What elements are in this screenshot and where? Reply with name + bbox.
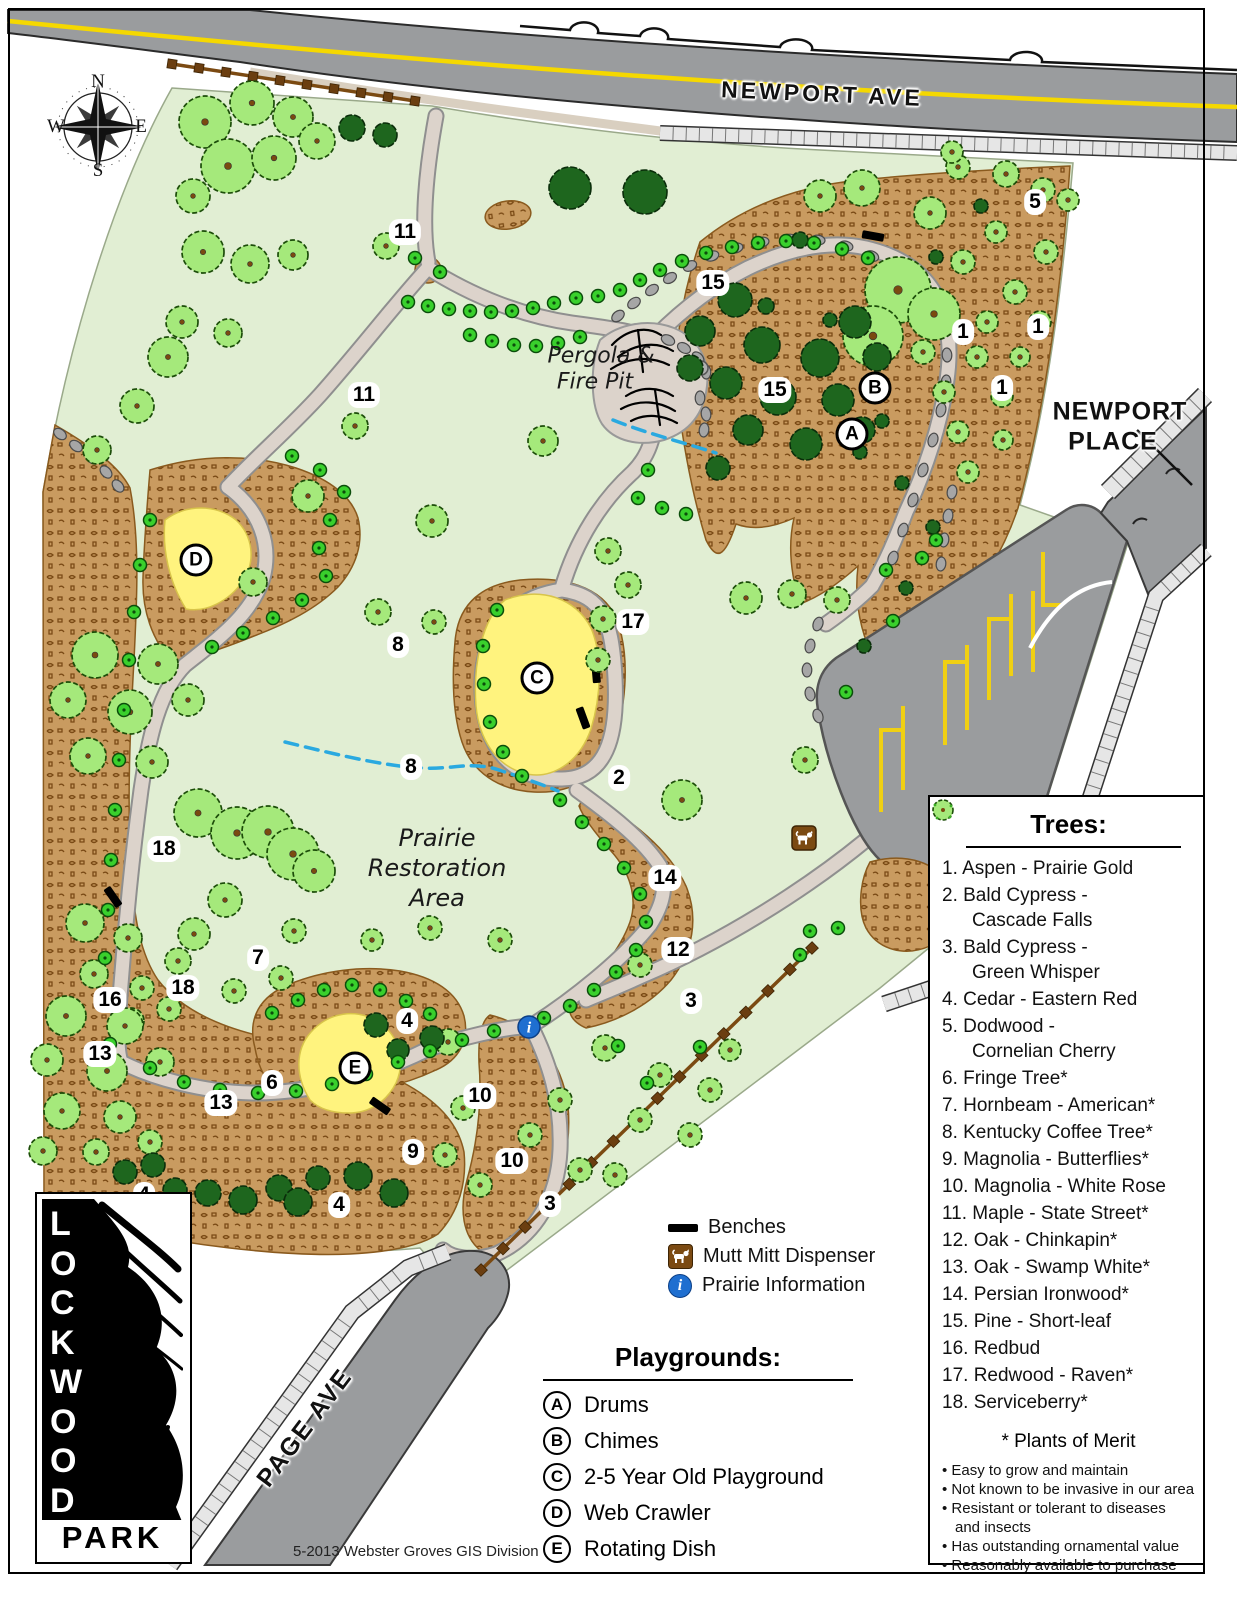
prairie-info-label: Prairie Information [702, 1274, 865, 1297]
tree-legend-item-15[interactable]: 15. Pine - Short-leaf [942, 1309, 1195, 1334]
tree-legend-item-4[interactable]: 4. Cedar - Eastern Red [942, 987, 1195, 1012]
evergreen-tree-icon [339, 115, 365, 141]
deciduous-tree-icon [911, 340, 935, 364]
mutt-mitt-label: Mutt Mitt Dispenser [703, 1245, 875, 1268]
playground-marker-C[interactable]: C [521, 662, 554, 695]
deciduous-tree-icon [114, 924, 142, 952]
deciduous-tree-icon [468, 1173, 492, 1197]
deciduous-tree-icon [120, 389, 154, 423]
evergreen-tree-icon [364, 1013, 388, 1037]
deciduous-tree-icon [719, 1039, 741, 1061]
shrub-icon [422, 300, 435, 313]
evergreen-tree-icon [195, 1180, 221, 1206]
shrub-icon [887, 615, 900, 628]
shrub-icon [484, 716, 497, 729]
tree-legend-item-2[interactable]: 2. Bald Cypress -Cascade Falls [942, 883, 1195, 933]
deciduous-tree-icon [178, 918, 210, 950]
deciduous-tree-icon [172, 684, 204, 716]
evergreen-tree-icon [373, 123, 397, 147]
shrub-icon [630, 944, 643, 957]
playground-label: Web Crawler [584, 1500, 711, 1526]
tree-legend-text: 15. Pine - Short-leaf [942, 1311, 1111, 1332]
tree-legend-text: 8. Kentucky Coffee Tree* [942, 1122, 1153, 1143]
merit-bullet: and insects [942, 1518, 1195, 1537]
deciduous-tree-icon [269, 966, 293, 990]
deciduous-tree-icon [1057, 189, 1079, 211]
fence-post [329, 84, 339, 94]
deciduous-tree-icon [166, 306, 198, 338]
shrub-icon [880, 564, 893, 577]
deciduous-tree-icon [66, 904, 104, 942]
shrub-icon [656, 502, 669, 515]
evergreen-tree-icon [822, 384, 854, 416]
mutt-mitt-icon [668, 1244, 693, 1269]
shrub-icon [930, 534, 943, 547]
evergreen-tree-icon [744, 327, 780, 363]
shrub-icon [488, 1025, 501, 1038]
tree-number-marker-5[interactable]: 5 [1024, 189, 1046, 215]
tree-legend-text: 2. Bald Cypress - [942, 885, 1088, 906]
deciduous-tree-icon [548, 1088, 572, 1112]
shrub-icon [409, 252, 422, 265]
tree-number-marker-18[interactable]: 18 [147, 836, 180, 862]
tree-icon [930, 797, 956, 823]
tree-legend-item-1[interactable]: 1. Aspen - Prairie Gold [942, 856, 1195, 881]
deciduous-tree-icon [844, 170, 880, 206]
tree-legend-text: 3. Bald Cypress - [942, 937, 1088, 958]
fence-post [194, 63, 204, 73]
shrub-icon [109, 804, 122, 817]
shrub-icon [266, 1007, 279, 1020]
shrub-icon [632, 492, 645, 505]
tree-number-marker-3[interactable]: 3 [680, 988, 702, 1014]
evergreen-tree-icon [306, 1166, 330, 1190]
tree-number-marker-13[interactable]: 13 [204, 1090, 237, 1116]
shrub-icon [618, 862, 631, 875]
tree-legend-item-14[interactable]: 14. Persian Ironwood* [942, 1282, 1195, 1307]
tree-number-marker-15[interactable]: 15 [696, 270, 729, 296]
playgrounds-underline [543, 1379, 853, 1381]
shrub-icon [516, 770, 529, 783]
playground-marker-E[interactable]: E [339, 1052, 372, 1085]
tree-legend-item-16[interactable]: 16. Redbud [942, 1336, 1195, 1361]
shrub-icon [296, 594, 309, 607]
tree-number-marker-16[interactable]: 16 [93, 987, 126, 1013]
evergreen-tree-icon [344, 1162, 372, 1190]
shrub-icon [506, 305, 519, 318]
shrub-icon [794, 949, 807, 962]
deciduous-tree-icon [361, 929, 383, 951]
shrub-icon [497, 746, 510, 759]
tree-number-marker-1[interactable]: 1 [952, 319, 974, 345]
deciduous-tree-icon [698, 1078, 722, 1102]
prairie-label-line3: Area [409, 884, 465, 912]
playground-label: Drums [584, 1392, 649, 1418]
deciduous-tree-icon [615, 572, 641, 598]
deciduous-tree-icon [83, 436, 111, 464]
deciduous-tree-icon [208, 883, 242, 917]
tree-number-marker-14[interactable]: 14 [648, 865, 681, 891]
shrub-icon [113, 754, 126, 767]
prairie-info-icon: i [668, 1274, 692, 1298]
deciduous-tree-icon [130, 976, 154, 1000]
deciduous-tree-icon [182, 231, 224, 273]
evergreen-tree-icon [685, 316, 715, 346]
deciduous-tree-icon [488, 928, 512, 952]
deciduous-tree-icon [365, 599, 391, 625]
deciduous-tree-icon [678, 1123, 702, 1147]
deciduous-tree-icon [933, 381, 955, 403]
tree-legend-item-9[interactable]: 9. Magnolia - Butterflies* [942, 1147, 1195, 1172]
legend-row-info: i Prairie Information [668, 1271, 875, 1300]
tree-legend-text: 6. Fringe Tree* [942, 1068, 1068, 1089]
deciduous-tree-icon [947, 421, 969, 443]
shrub-icon [424, 1008, 437, 1021]
shrub-icon [574, 331, 587, 344]
shrub-icon [346, 979, 359, 992]
deciduous-tree-icon [176, 179, 210, 213]
deciduous-tree-icon [804, 180, 836, 212]
deciduous-tree-icon [165, 948, 191, 974]
pergola-label-line1: Pergola & [547, 344, 654, 369]
trees-legend-underline [966, 846, 1181, 848]
prairie-label-line1: Prairie [398, 824, 475, 852]
deciduous-tree-icon [628, 953, 652, 977]
shrub-icon [478, 678, 491, 691]
playground-letter-badge: E [543, 1535, 571, 1563]
evergreen-tree-icon [733, 415, 763, 445]
shrub-icon [134, 559, 147, 572]
shrub-icon [862, 252, 875, 265]
tree-legend-text: 14. Persian Ironwood* [942, 1284, 1129, 1305]
compass-east-label: E [135, 116, 147, 138]
evergreen-tree-icon [758, 298, 774, 314]
deciduous-tree-icon [299, 123, 335, 159]
deciduous-tree-icon [993, 430, 1013, 450]
park-text: PARK [42, 1520, 183, 1556]
stone [695, 391, 705, 405]
tree-number-marker-15[interactable]: 15 [758, 377, 791, 403]
tree-legend-text: 5. Dodwood - [942, 1016, 1055, 1037]
shrub-icon [610, 966, 623, 979]
compass-north-label: N [91, 71, 105, 93]
playground-label: 2-5 Year Old Playground [584, 1464, 824, 1490]
fence-post [221, 67, 231, 77]
deciduous-tree-icon [418, 916, 442, 940]
webster-groves-logo: Webster Groves [95, 1359, 175, 1391]
merit-bullet: Reasonably available to purchase [942, 1556, 1195, 1575]
shrub-icon [314, 464, 327, 477]
deciduous-tree-icon [985, 221, 1007, 243]
shrub-icon [464, 329, 477, 342]
trees-legend-title: Trees: [1030, 809, 1107, 840]
deciduous-tree-icon [628, 1108, 652, 1132]
playground-letter-badge: C [543, 1463, 571, 1491]
deciduous-tree-icon [46, 996, 86, 1036]
evergreen-tree-icon [863, 343, 891, 371]
evergreen-tree-icon [623, 170, 667, 214]
deciduous-tree-icon [595, 538, 621, 564]
shrub-icon [680, 508, 693, 521]
evergreen-tree-icon [929, 250, 943, 264]
tree-legend-item-3[interactable]: 3. Bald Cypress -Green Whisper [942, 935, 1195, 985]
evergreen-tree-icon [284, 1188, 312, 1216]
shrub-icon [634, 888, 647, 901]
stone [802, 663, 812, 677]
evergreen-tree-icon [677, 355, 703, 381]
tree-legend-item-13[interactable]: 13. Oak - Swamp White* [942, 1255, 1195, 1280]
deciduous-tree-icon [292, 480, 324, 512]
playground-legend-item-A[interactable]: ADrums [543, 1391, 873, 1419]
playgrounds-title: Playgrounds: [543, 1342, 853, 1373]
evergreen-tree-icon [801, 339, 839, 377]
playground-legend-item-D[interactable]: DWeb Crawler [543, 1499, 873, 1527]
groves-text: Groves [95, 1375, 175, 1391]
fence-post [248, 71, 258, 81]
shrub-icon [144, 514, 157, 527]
playground-label: Chimes [584, 1428, 659, 1454]
deciduous-tree-icon [1003, 280, 1027, 304]
shrub-icon [434, 266, 447, 279]
tree-number-marker-4[interactable]: 4 [328, 1192, 350, 1218]
shrub-icon [592, 290, 605, 303]
shrub-icon [486, 335, 499, 348]
merit-bullet: Has outstanding ornamental value [942, 1537, 1195, 1556]
credit-line: 5-2013 Webster Groves GIS Division [293, 1543, 539, 1560]
deciduous-tree-icon [416, 505, 448, 537]
lockwood-vertical-text: LOCKWOOD [50, 1205, 82, 1521]
playground-marker-B[interactable]: B [859, 372, 892, 405]
tree-legend-text: Cascade Falls [942, 908, 1195, 933]
tree-legend-item-6[interactable]: 6. Fringe Tree* [942, 1066, 1195, 1091]
bench-icon [668, 1224, 698, 1232]
tree-legend-item-17[interactable]: 17. Redwood - Raven* [942, 1363, 1195, 1388]
compass-south-label: S [93, 160, 104, 182]
evergreen-tree-icon [792, 232, 808, 248]
evergreen-tree-icon [380, 1179, 408, 1207]
deciduous-tree-icon [136, 746, 168, 778]
shrub-icon [320, 570, 333, 583]
deciduous-tree-icon [792, 747, 818, 773]
shrub-icon [598, 838, 611, 851]
mutt-mitt-dispenser-marker[interactable] [792, 826, 816, 850]
tree-legend-item-5[interactable]: 5. Dodwood -Cornelian Cherry [942, 1014, 1195, 1064]
evergreen-tree-icon [141, 1153, 165, 1177]
prairie-information-marker[interactable]: i [518, 1016, 540, 1038]
tree-number-marker-12[interactable]: 12 [661, 937, 694, 963]
shrub-icon [752, 237, 765, 250]
playground-legend-item-C[interactable]: C2-5 Year Old Playground [543, 1463, 873, 1491]
deciduous-tree-icon [1010, 347, 1030, 367]
tree-legend-item-12[interactable]: 12. Oak - Chinkapin* [942, 1228, 1195, 1253]
deciduous-tree-icon [603, 1163, 627, 1187]
deciduous-tree-icon [72, 632, 118, 678]
shrub-icon [326, 1078, 339, 1091]
deciduous-tree-icon [914, 197, 946, 229]
fence-post [410, 96, 420, 106]
deciduous-tree-icon [966, 346, 988, 368]
shrub-icon [477, 640, 490, 653]
tree-number-marker-8[interactable]: 8 [400, 754, 422, 780]
deciduous-tree-icon [518, 1123, 542, 1147]
playground-legend-item-E[interactable]: ERotating Dish [543, 1535, 873, 1563]
tree-number-marker-10[interactable]: 10 [463, 1083, 496, 1109]
trees-legend-title-row: Trees: [942, 809, 1195, 840]
playground-marker-A[interactable]: A [836, 418, 869, 451]
tree-legend-item-11[interactable]: 11. Maple - State Street* [942, 1201, 1195, 1226]
evergreen-tree-icon [857, 639, 871, 653]
deciduous-tree-icon [778, 580, 806, 608]
evergreen-tree-icon [229, 1186, 257, 1214]
deciduous-tree-icon [44, 1093, 80, 1129]
tree-legend-text: 13. Oak - Swamp White* [942, 1257, 1150, 1278]
shrub-icon [832, 922, 845, 935]
playground-legend-item-B[interactable]: BChimes [543, 1427, 873, 1455]
symbols-legend: Benches Mutt Mitt Dispenser i Prairie In… [668, 1213, 875, 1300]
tree-number-marker-10[interactable]: 10 [495, 1148, 528, 1174]
shrub-icon [554, 794, 567, 807]
shrub-icon [576, 816, 589, 829]
shrub-icon [118, 704, 131, 717]
shrub-icon [292, 994, 305, 1007]
merit-bullet: Not known to be invasive in our area [942, 1480, 1195, 1499]
evergreen-tree-icon [974, 199, 988, 213]
tree-legend-text: 12. Oak - Chinkapin* [942, 1230, 1117, 1251]
tree-legend-item-10[interactable]: 10. Magnolia - White Rose [942, 1174, 1195, 1199]
shrub-icon [237, 627, 250, 640]
tree-legend-item-18[interactable]: 18. Serviceberry* [942, 1390, 1195, 1415]
deciduous-tree-icon [957, 461, 979, 483]
newport-place-label-2: PLACE [1068, 428, 1158, 457]
tree-legend-text: 9. Magnolia - Butterflies* [942, 1149, 1149, 1170]
tree-number-marker-11[interactable]: 11 [348, 382, 380, 408]
tree-legend-text: 16. Redbud [942, 1338, 1040, 1359]
tree-legend-text: Cornelian Cherry [942, 1039, 1195, 1064]
shrub-icon [612, 1040, 625, 1053]
shrub-icon [491, 604, 504, 617]
svg-text:i: i [527, 1020, 532, 1037]
legend-row-benches: Benches [668, 1213, 875, 1242]
shrub-icon [318, 984, 331, 997]
compass-west-label: W [47, 116, 65, 138]
shrub-icon [654, 264, 667, 277]
fence-post [383, 92, 393, 102]
shrub-icon [641, 1077, 654, 1090]
playground-letter-badge: D [543, 1499, 571, 1527]
tree-legend-item-8[interactable]: 8. Kentucky Coffee Tree* [942, 1120, 1195, 1145]
deciduous-tree-icon [214, 319, 242, 347]
tree-number-marker-9[interactable]: 9 [402, 1139, 424, 1165]
tree-number-marker-7[interactable]: 7 [247, 945, 269, 971]
tree-number-marker-1[interactable]: 1 [991, 375, 1013, 401]
deciduous-tree-icon [342, 413, 368, 439]
deciduous-tree-icon [252, 136, 296, 180]
shrub-icon [634, 274, 647, 287]
shrub-icon [694, 1041, 707, 1054]
shrub-icon [392, 1056, 405, 1069]
tree-legend-text: 10. Magnolia - White Rose [942, 1176, 1166, 1197]
evergreen-tree-icon [790, 428, 822, 460]
evergreen-tree-icon [823, 313, 837, 327]
stone [942, 348, 952, 363]
tree-number-marker-11[interactable]: 11 [389, 219, 421, 245]
park-logo-art: LOCKWOOD Webster Groves [42, 1199, 183, 1524]
deciduous-tree-icon [433, 1143, 457, 1167]
merit-bullet: Easy to grow and maintain [942, 1461, 1195, 1480]
playground-label: Rotating Dish [584, 1536, 716, 1562]
shrub-icon [840, 686, 853, 699]
tree-number-marker-1[interactable]: 1 [1027, 314, 1049, 340]
shrub-icon [105, 854, 118, 867]
evergreen-tree-icon [926, 520, 940, 534]
fence-post [302, 79, 312, 89]
tree-number-marker-6[interactable]: 6 [261, 1070, 283, 1096]
shrub-icon [206, 641, 219, 654]
evergreen-tree-icon [875, 414, 889, 428]
deciduous-tree-icon [138, 1130, 162, 1154]
shrub-icon [548, 297, 561, 310]
tree-number-marker-4[interactable]: 4 [396, 1008, 418, 1034]
tree-number-marker-8[interactable]: 8 [387, 632, 409, 658]
tree-number-marker-17[interactable]: 17 [616, 609, 649, 635]
tree-number-marker-2[interactable]: 2 [608, 765, 630, 791]
tree-number-marker-18[interactable]: 18 [166, 975, 199, 1001]
tree-number-marker-3[interactable]: 3 [539, 1191, 561, 1217]
tree-legend-text: 7. Hornbeam - American* [942, 1095, 1155, 1116]
shrub-icon [99, 952, 112, 965]
evergreen-tree-icon [895, 476, 909, 490]
playground-letter-badge: A [543, 1391, 571, 1419]
shrub-icon [570, 292, 583, 305]
plants-of-merit-note: * Plants of Merit [942, 1431, 1195, 1453]
shrub-icon [916, 552, 929, 565]
shrub-icon [804, 925, 817, 938]
deciduous-tree-icon [239, 568, 267, 596]
deciduous-tree-icon [976, 311, 998, 333]
playground-marker-D[interactable]: D [180, 544, 213, 577]
deciduous-tree-icon [293, 850, 335, 892]
playground-letter-badge: B [543, 1427, 571, 1455]
fence-post [356, 88, 366, 98]
tree-number-marker-13[interactable]: 13 [83, 1041, 116, 1067]
tree-legend-text: 11. Maple - State Street* [942, 1203, 1149, 1224]
evergreen-tree-icon [113, 1160, 137, 1184]
shrub-icon [178, 1076, 191, 1089]
deciduous-tree-icon [993, 161, 1019, 187]
tree-legend-text: 17. Redwood - Raven* [942, 1365, 1133, 1386]
shrub-icon [464, 305, 477, 318]
shrub-icon [286, 450, 299, 463]
fence-post [167, 59, 177, 69]
deciduous-tree-icon [138, 644, 178, 684]
tree-legend-text: Green Whisper [942, 960, 1195, 985]
evergreen-tree-icon [899, 581, 913, 595]
shrub-icon [267, 612, 280, 625]
newport-place-label-1: NEWPORT [1053, 398, 1188, 427]
deciduous-tree-icon [31, 1044, 63, 1076]
shrub-icon [588, 984, 601, 997]
deciduous-tree-icon [104, 1101, 136, 1133]
shrub-icon [402, 296, 415, 309]
park-title-block: LOCKWOOD Webster Groves PARK [35, 1192, 192, 1564]
merit-bullet: Resistant or tolerant to diseases [942, 1499, 1195, 1518]
shrub-icon [313, 542, 326, 555]
shrub-icon [508, 339, 521, 352]
tree-legend-item-7[interactable]: 7. Hornbeam - American* [942, 1093, 1195, 1118]
deciduous-tree-icon [29, 1137, 57, 1165]
shrub-icon [614, 284, 627, 297]
deciduous-tree-icon [590, 606, 616, 632]
